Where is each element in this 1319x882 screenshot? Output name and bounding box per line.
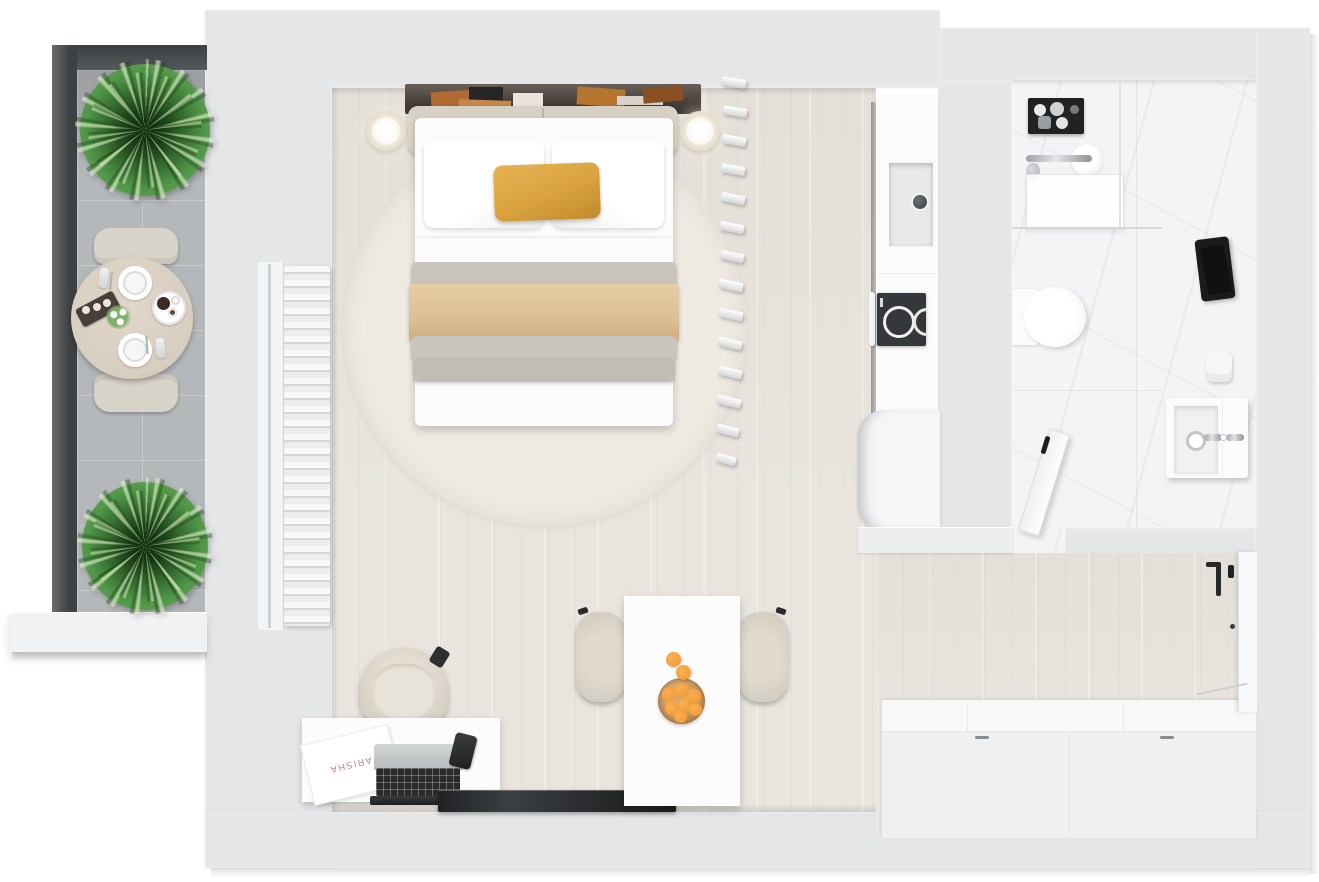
potted-plant-top	[80, 64, 210, 196]
floor-plan-canvas: ARISHA	[0, 0, 1319, 882]
wall-bath-hall-divider	[1065, 528, 1256, 554]
sideboard-handle	[975, 736, 989, 739]
building-shadow-right	[1310, 34, 1319, 874]
blanket-gray-bottom	[413, 358, 675, 382]
ladder-slat	[719, 221, 744, 234]
door-peephole	[1230, 624, 1235, 629]
toiletry-bottle	[1050, 102, 1064, 116]
sideboard-seam	[967, 702, 968, 732]
living-chair-right	[738, 612, 788, 702]
ladder-slat	[716, 394, 741, 409]
vanity-faucet-ring	[1186, 431, 1206, 451]
orange	[674, 710, 687, 723]
kitchen-counter-joint	[877, 273, 937, 274]
oven-handle	[869, 292, 875, 346]
orange-loose	[666, 652, 681, 667]
kitchen-sink	[886, 160, 936, 249]
toiletry-jar	[1038, 116, 1051, 129]
hall-sideboard	[882, 700, 1256, 838]
coffee-cup-dark	[157, 297, 170, 310]
wall-kitchen-bath-divider	[938, 80, 1012, 553]
balcony-chair-bottom	[94, 374, 178, 412]
sushi-piece-2	[93, 303, 101, 311]
shower-glass-edge	[1119, 82, 1121, 228]
vanity-handle-right	[1226, 434, 1244, 441]
drinking-glass-bottom	[155, 338, 166, 359]
sideboard-seam	[1123, 702, 1124, 732]
fruit-bowl	[658, 678, 705, 724]
ladder-slat	[721, 134, 746, 147]
laptop-screen	[374, 744, 462, 770]
cooktop-burner-ring-left	[883, 306, 915, 338]
ladder-slat	[720, 192, 745, 205]
bedside-lamp-right-glow	[686, 117, 714, 145]
ladder-slat	[715, 453, 737, 467]
orange-loose	[676, 665, 691, 680]
bedside-lamp-left-glow	[372, 117, 400, 145]
shower-door-towel-bar	[1026, 155, 1092, 162]
ladder-slat	[719, 250, 744, 264]
entry-door-handle-hook	[1206, 562, 1220, 567]
radiator	[284, 266, 330, 626]
entry-door-leaf	[1238, 552, 1257, 712]
ladder-slat	[720, 163, 745, 176]
desk-paper-label: ARISHA	[329, 755, 373, 775]
coffee-cup-small	[168, 308, 177, 317]
coffee-cup-light	[171, 296, 180, 305]
bathroom-tile-seam-vertical	[1136, 80, 1137, 528]
sideboard-handle	[1160, 736, 1174, 739]
toiletry-shelf	[1028, 98, 1084, 134]
duvet-fold-line	[417, 236, 671, 239]
book	[642, 85, 683, 103]
toiletry-bottle	[1034, 104, 1046, 116]
ladder-slat	[717, 336, 742, 350]
ladder-slat	[718, 279, 743, 293]
window-frame	[258, 262, 284, 630]
wall-top-right	[940, 28, 1310, 80]
ladder-slat	[718, 308, 743, 322]
ladder-slat	[721, 76, 746, 89]
sideboard-countertop	[882, 700, 1256, 732]
entry-door-handle-bar	[1216, 562, 1221, 596]
orange	[662, 687, 676, 701]
bathroom-tile-seam-horizontal	[1012, 390, 1162, 391]
potted-plant-bottom	[82, 482, 208, 610]
ladder-rack	[712, 78, 752, 466]
vanity-handle-left	[1204, 434, 1222, 441]
living-chair-left	[576, 612, 626, 702]
toilet-paper-roll	[1206, 352, 1232, 382]
accent-pillow	[493, 162, 601, 222]
desk-chair-seat	[372, 664, 436, 718]
building-shadow-bottom	[211, 868, 1310, 878]
cooktop	[877, 293, 926, 346]
shower-glass-panel	[1026, 174, 1124, 230]
balcony-ledge	[10, 612, 207, 652]
toiletry-cap	[1070, 105, 1079, 114]
orange	[689, 703, 702, 716]
toilet-bowl	[1024, 287, 1086, 347]
vanity-faucet-dot	[1221, 435, 1226, 440]
cooktop-control-mark	[880, 298, 883, 307]
ladder-slat	[717, 365, 742, 379]
sink-faucet	[913, 195, 927, 209]
throw-blanket	[409, 284, 679, 342]
kitchen-tall-unit	[858, 410, 940, 530]
table-flowers	[106, 305, 132, 329]
sushi-piece-3	[103, 299, 111, 307]
window-glass	[268, 264, 271, 628]
cooktop-burner-ring-right	[913, 308, 926, 336]
ladder-slat	[716, 423, 740, 437]
plate-top	[118, 266, 152, 300]
book	[513, 93, 543, 106]
shower-partition-line	[1012, 227, 1162, 229]
kitchen-unit-base	[858, 527, 1013, 553]
kitchen-counter	[876, 96, 938, 418]
wall-right	[1256, 28, 1310, 868]
ladder-slat	[722, 105, 747, 118]
sideboard-door-seam	[1069, 734, 1070, 834]
wall-hook	[1228, 565, 1234, 578]
balcony-shadow-bottom	[12, 652, 207, 661]
toiletry-bottle	[1056, 117, 1068, 129]
